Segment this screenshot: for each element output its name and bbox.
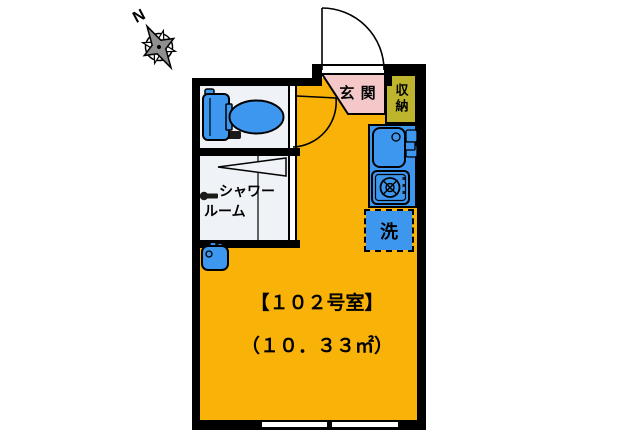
floor-plan: 収納 洗 (0, 0, 640, 447)
entrance-label: 玄 関 (330, 85, 386, 102)
wall-sanitary-right (288, 86, 297, 240)
entrance-door-threshold (322, 64, 384, 76)
shower-label-line2: ルーム (204, 201, 288, 221)
wall-top-left (192, 78, 318, 86)
shower-label-line1: シャワー (204, 181, 288, 201)
window-bottom-mullion (327, 422, 332, 427)
compass-n-label: N (130, 0, 160, 28)
room-area-label: （１０．３３㎡） (212, 336, 422, 358)
washing-machine-area: 洗 (364, 209, 414, 252)
room-title: 【１０２号室】 (212, 293, 422, 315)
storage-label: 収納 (392, 83, 411, 115)
toilet-room-floor (200, 86, 288, 148)
entrance-door-swing-icon (322, 8, 384, 70)
wall-right (417, 64, 426, 430)
washer-label: 洗 (380, 218, 398, 244)
wall-sanitary-bottom (192, 240, 300, 248)
wall-left (192, 78, 200, 430)
kitchen-area (368, 124, 417, 208)
wall-toilet-shower-divider (200, 148, 300, 156)
shower-room-label: シャワー ルーム (204, 181, 288, 221)
door-jamb-left (312, 64, 322, 86)
